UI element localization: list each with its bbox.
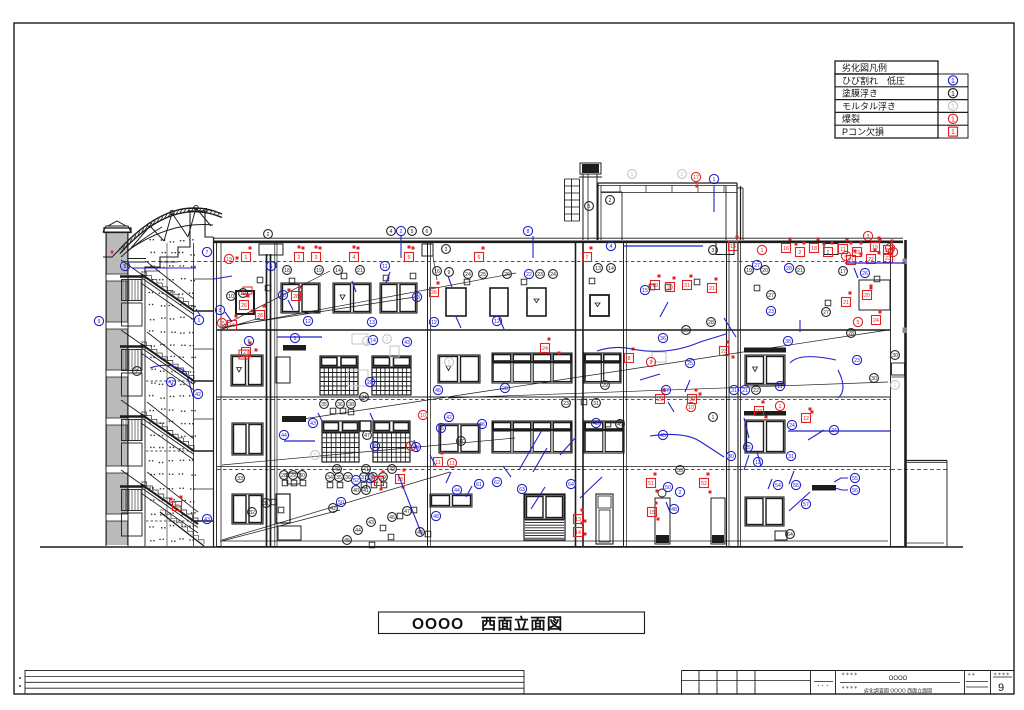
svg-text:48: 48 — [593, 421, 599, 427]
svg-text:64: 64 — [787, 532, 793, 538]
svg-text:31: 31 — [263, 501, 269, 507]
svg-text:ひび割れ 低圧: ひび割れ 低圧 — [842, 75, 905, 86]
svg-text:57: 57 — [803, 502, 809, 508]
svg-text:21: 21 — [709, 286, 715, 292]
svg-text:2: 2 — [681, 172, 684, 178]
svg-text:28: 28 — [293, 294, 299, 300]
svg-text:1: 1 — [314, 453, 317, 459]
svg-text:6: 6 — [478, 255, 481, 261]
svg-text:21: 21 — [742, 388, 748, 394]
svg-text:34: 34 — [327, 475, 333, 481]
svg-text:1: 1 — [894, 383, 897, 389]
svg-text:44: 44 — [355, 528, 361, 534]
svg-text:46: 46 — [389, 515, 395, 521]
svg-text:4: 4 — [353, 255, 356, 261]
svg-text:＊＊: ＊＊ — [967, 672, 975, 677]
svg-text:6: 6 — [426, 229, 429, 235]
svg-text:1: 1 — [951, 89, 955, 98]
svg-text:2: 2 — [827, 250, 830, 256]
svg-text:8: 8 — [628, 356, 631, 362]
svg-text:11: 11 — [382, 264, 387, 270]
svg-text:8: 8 — [527, 229, 530, 235]
svg-text:52: 52 — [701, 481, 707, 487]
svg-text:2: 2 — [298, 255, 301, 261]
svg-text:48: 48 — [433, 514, 439, 520]
svg-text:27: 27 — [768, 293, 774, 299]
svg-text:4: 4 — [390, 229, 393, 235]
svg-text:38: 38 — [348, 402, 354, 408]
svg-text:49: 49 — [617, 422, 623, 428]
svg-text:51: 51 — [648, 481, 654, 487]
svg-text:15: 15 — [219, 321, 225, 327]
svg-text:53: 53 — [677, 468, 683, 474]
svg-text:30: 30 — [871, 376, 877, 382]
svg-text:1: 1 — [448, 360, 451, 366]
svg-text:25: 25 — [687, 361, 693, 367]
svg-text:13: 13 — [414, 295, 420, 301]
svg-text:47: 47 — [404, 509, 410, 515]
svg-text:19: 19 — [316, 268, 322, 274]
svg-text:30: 30 — [683, 328, 689, 334]
svg-text:16: 16 — [434, 269, 440, 275]
svg-text:2: 2 — [400, 229, 403, 235]
svg-text:44: 44 — [454, 488, 460, 494]
svg-text:14: 14 — [575, 530, 581, 536]
svg-text:12: 12 — [305, 319, 311, 325]
svg-text:1: 1 — [198, 318, 201, 324]
svg-text:32: 32 — [249, 510, 255, 516]
svg-text:36: 36 — [660, 336, 666, 342]
svg-text:26: 26 — [862, 271, 868, 277]
svg-text:12: 12 — [431, 320, 437, 326]
svg-text:9: 9 — [998, 682, 1004, 694]
svg-text:46: 46 — [435, 388, 441, 394]
svg-text:1: 1 — [631, 172, 634, 178]
svg-text:1: 1 — [712, 415, 715, 421]
svg-text:5: 5 — [411, 229, 414, 235]
svg-text:・・・: ・・・ — [816, 683, 830, 688]
svg-text:15: 15 — [649, 510, 655, 516]
svg-text:12: 12 — [494, 319, 500, 325]
svg-text:5: 5 — [124, 264, 127, 270]
svg-text:29: 29 — [290, 473, 296, 479]
svg-text:64: 64 — [568, 482, 574, 488]
svg-text:19: 19 — [746, 268, 752, 274]
svg-text:56: 56 — [793, 483, 799, 489]
svg-text:3: 3 — [867, 234, 870, 240]
svg-text:24: 24 — [550, 272, 556, 278]
svg-text:16: 16 — [229, 323, 235, 329]
svg-text:29: 29 — [657, 397, 663, 403]
svg-text:42: 42 — [446, 415, 452, 421]
svg-text:28: 28 — [708, 320, 714, 326]
svg-text:22: 22 — [526, 272, 532, 278]
svg-text:26: 26 — [504, 272, 510, 278]
svg-text:1: 1 — [713, 177, 716, 183]
svg-text:28: 28 — [257, 313, 263, 319]
svg-text:42: 42 — [195, 392, 201, 398]
svg-text:24: 24 — [873, 318, 879, 324]
svg-text:30: 30 — [892, 353, 898, 359]
svg-text:50: 50 — [338, 500, 344, 506]
svg-text:27: 27 — [243, 350, 249, 356]
svg-text:14: 14 — [730, 244, 736, 250]
svg-text:31: 31 — [684, 283, 690, 289]
svg-text:43: 43 — [204, 517, 210, 523]
svg-text:爆裂: 爆裂 — [842, 113, 860, 124]
svg-text:27: 27 — [823, 310, 829, 316]
svg-text:31: 31 — [593, 401, 599, 407]
svg-text:23: 23 — [768, 309, 774, 315]
svg-text:9: 9 — [448, 270, 451, 276]
svg-text:42: 42 — [330, 506, 336, 512]
svg-text:38: 38 — [785, 339, 791, 345]
svg-text:43: 43 — [310, 421, 316, 427]
svg-text:1: 1 — [951, 76, 955, 85]
svg-text:36: 36 — [337, 402, 343, 408]
svg-text:22: 22 — [868, 257, 874, 263]
svg-text:劣化図凡例: 劣化図凡例 — [842, 62, 887, 73]
svg-text:48: 48 — [671, 507, 677, 513]
svg-text:30: 30 — [667, 285, 673, 291]
svg-text:26: 26 — [431, 290, 437, 296]
svg-text:3: 3 — [315, 255, 318, 261]
svg-text:2: 2 — [267, 232, 270, 238]
svg-text:43: 43 — [404, 340, 410, 346]
svg-text:53: 53 — [367, 476, 373, 482]
svg-text:10: 10 — [688, 405, 694, 411]
svg-text:モルタル浮き: モルタル浮き — [842, 100, 896, 111]
svg-text:47: 47 — [364, 433, 370, 439]
svg-text:30: 30 — [728, 454, 734, 460]
svg-text:OOOO: OOOO — [889, 676, 908, 682]
svg-text:2: 2 — [386, 337, 389, 343]
svg-text:12: 12 — [240, 291, 246, 297]
svg-text:5: 5 — [857, 320, 860, 326]
svg-text:13: 13 — [595, 266, 601, 272]
svg-text:20: 20 — [864, 293, 870, 299]
svg-text:17: 17 — [376, 479, 382, 485]
svg-text:25: 25 — [174, 504, 180, 510]
svg-text:35: 35 — [336, 475, 342, 481]
svg-text:55: 55 — [852, 476, 858, 482]
svg-text:18: 18 — [811, 246, 817, 252]
svg-text:1: 1 — [951, 102, 955, 111]
svg-text:4: 4 — [610, 244, 613, 250]
svg-text:3: 3 — [712, 248, 715, 254]
svg-text:＊＊＊＊: ＊＊＊＊ — [841, 672, 858, 677]
svg-text:8: 8 — [650, 360, 653, 366]
svg-text:31: 31 — [731, 388, 737, 394]
svg-text:54: 54 — [775, 483, 781, 489]
svg-text:23: 23 — [854, 358, 860, 364]
svg-text:17: 17 — [693, 175, 699, 181]
svg-text:40: 40 — [353, 488, 359, 494]
svg-text:33: 33 — [237, 476, 243, 482]
svg-text:OOOO 西面立面図: OOOO 西面立面図 — [412, 614, 563, 633]
svg-text:30: 30 — [299, 473, 305, 479]
svg-text:14: 14 — [335, 268, 341, 274]
svg-text:2: 2 — [679, 490, 682, 496]
svg-text:7: 7 — [586, 255, 589, 261]
svg-text:52: 52 — [353, 478, 359, 484]
svg-text:16: 16 — [783, 246, 789, 252]
svg-text:1: 1 — [761, 248, 764, 254]
svg-text:1: 1 — [951, 127, 955, 136]
svg-text:42: 42 — [389, 467, 395, 473]
svg-text:63: 63 — [519, 487, 525, 493]
svg-text:劣化調査図 OOOO 西面立面図: 劣化調査図 OOOO 西面立面図 — [864, 688, 932, 695]
svg-text:10: 10 — [228, 294, 234, 300]
svg-text:12: 12 — [803, 416, 809, 422]
svg-text:1: 1 — [779, 404, 782, 410]
svg-text:29: 29 — [602, 383, 608, 389]
svg-text:1: 1 — [951, 114, 955, 123]
svg-text:21: 21 — [797, 268, 803, 274]
svg-text:26: 26 — [241, 303, 247, 309]
svg-text:22: 22 — [753, 388, 759, 394]
svg-text:2: 2 — [136, 369, 139, 375]
svg-text:56: 56 — [852, 488, 858, 494]
svg-text:5: 5 — [588, 204, 591, 210]
svg-text:24: 24 — [789, 423, 795, 429]
svg-text:15: 15 — [642, 288, 648, 294]
svg-text:40: 40 — [280, 293, 286, 299]
svg-text:＊＊＊＊: ＊＊＊＊ — [841, 685, 858, 690]
svg-text:20: 20 — [502, 386, 508, 392]
svg-text:61: 61 — [476, 482, 482, 488]
svg-text:14: 14 — [608, 266, 614, 272]
svg-text:1: 1 — [366, 339, 369, 345]
svg-text:41: 41 — [363, 488, 369, 494]
svg-text:47: 47 — [458, 439, 464, 445]
svg-text:45: 45 — [438, 426, 444, 432]
svg-text:44: 44 — [281, 433, 287, 439]
svg-text:46: 46 — [479, 422, 485, 428]
svg-text:4: 4 — [845, 254, 848, 260]
svg-text:27: 27 — [754, 263, 760, 269]
svg-text:28: 28 — [848, 331, 854, 337]
svg-text:31: 31 — [788, 454, 794, 460]
svg-text:9: 9 — [98, 319, 101, 325]
svg-text:10: 10 — [420, 413, 426, 419]
svg-text:41: 41 — [168, 380, 174, 386]
svg-text:13: 13 — [575, 517, 581, 523]
svg-text:34: 34 — [361, 395, 367, 401]
svg-text:7: 7 — [206, 250, 209, 256]
svg-text:塗膜浮き: 塗膜浮き — [842, 88, 878, 99]
svg-text:23: 23 — [563, 401, 569, 407]
svg-text:19: 19 — [226, 257, 232, 263]
svg-text:62: 62 — [494, 480, 500, 486]
svg-text:21: 21 — [843, 300, 849, 306]
svg-text:2: 2 — [609, 198, 612, 204]
svg-text:23: 23 — [721, 349, 727, 355]
svg-text:35: 35 — [321, 402, 327, 408]
svg-text:13: 13 — [369, 320, 375, 326]
svg-text:23: 23 — [537, 272, 543, 278]
svg-text:5: 5 — [270, 264, 273, 270]
svg-text:11: 11 — [449, 461, 454, 467]
svg-text:29: 29 — [652, 283, 658, 289]
svg-text:43: 43 — [368, 520, 374, 526]
svg-text:50: 50 — [665, 485, 671, 491]
svg-text:28: 28 — [281, 473, 287, 479]
svg-text:25: 25 — [745, 445, 751, 451]
svg-text:1: 1 — [245, 255, 248, 261]
svg-text:Pコン欠損: Pコン欠損 — [842, 126, 884, 137]
svg-text:25: 25 — [480, 272, 486, 278]
svg-text:11: 11 — [777, 384, 782, 390]
svg-text:28: 28 — [367, 380, 373, 386]
svg-text:17: 17 — [840, 269, 846, 275]
svg-text:3: 3 — [445, 247, 448, 253]
svg-text:20: 20 — [762, 268, 768, 274]
svg-text:23: 23 — [885, 256, 891, 262]
svg-text:28: 28 — [786, 266, 792, 272]
svg-text:24: 24 — [465, 272, 471, 278]
svg-text:2: 2 — [799, 250, 802, 256]
svg-text:＊＊＊＊: ＊＊＊＊ — [993, 672, 1010, 677]
svg-text:36: 36 — [345, 475, 351, 481]
svg-text:5: 5 — [408, 255, 411, 261]
svg-text:45: 45 — [372, 444, 378, 450]
svg-text:18: 18 — [284, 268, 290, 274]
svg-text:24: 24 — [542, 346, 548, 352]
svg-text:27: 27 — [756, 409, 762, 415]
svg-text:21: 21 — [357, 268, 363, 274]
svg-text:8: 8 — [219, 308, 222, 314]
svg-text:45: 45 — [344, 538, 350, 544]
